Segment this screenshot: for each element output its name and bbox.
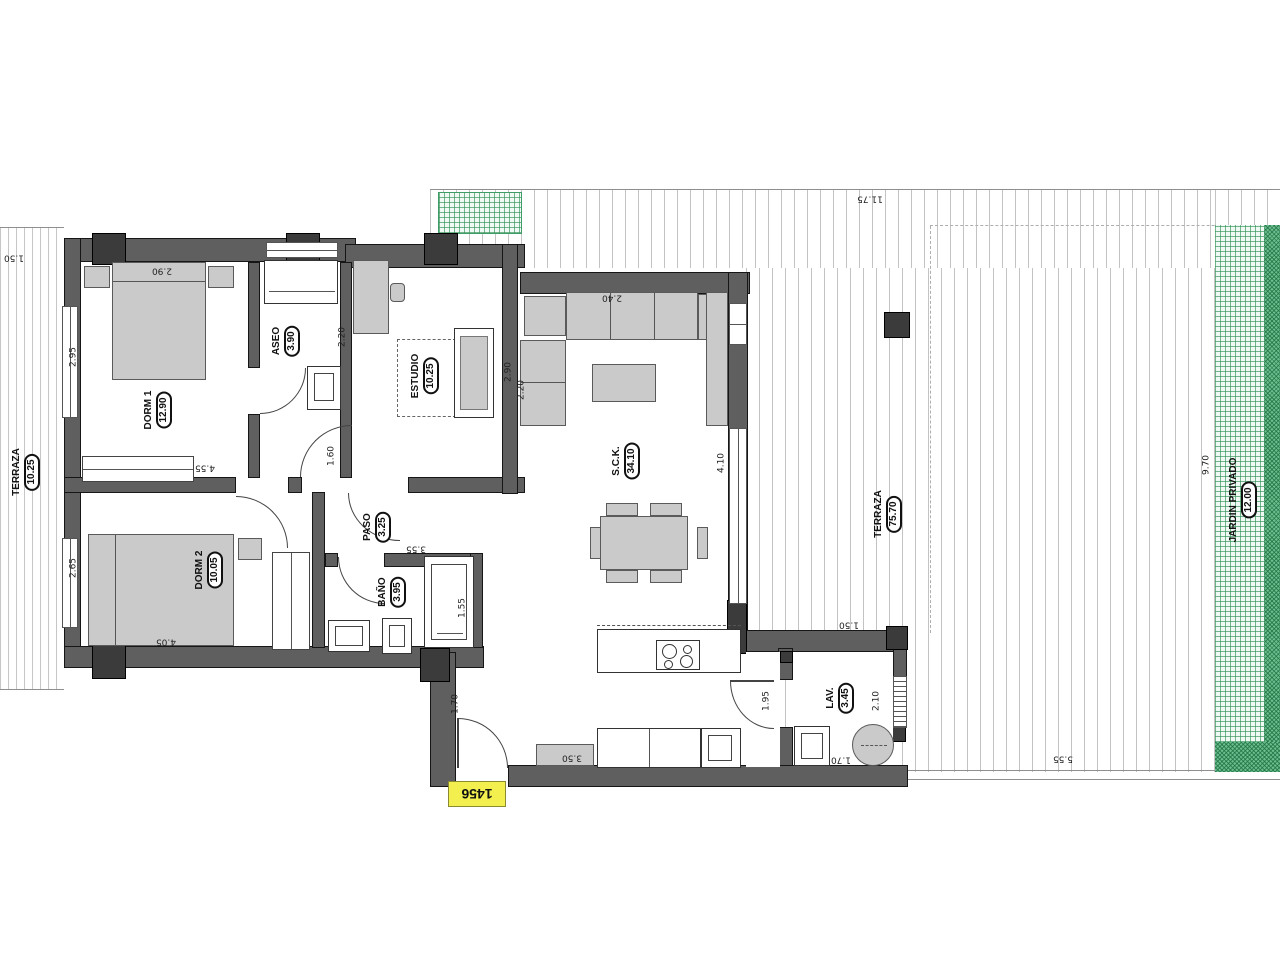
plan-reference-tag: 1456 <box>448 781 506 807</box>
washer-line <box>861 745 887 746</box>
wall-dorm1-aseo-upper <box>248 262 260 368</box>
dining-chair <box>590 527 601 559</box>
washing-machine <box>852 724 894 766</box>
laundry-sink <box>794 726 830 766</box>
room-name: PASO <box>363 513 373 541</box>
terrace-top-line <box>430 189 1280 190</box>
room-area: 3.90 <box>284 325 300 356</box>
room-label-aseo: ASEO 3.90 <box>272 325 300 356</box>
room-name: JARDIN PRIVADO <box>1229 458 1239 543</box>
room-name: BAÑO <box>378 577 388 606</box>
nightstand <box>208 266 234 288</box>
room-name: ASEO <box>272 327 282 355</box>
terrace-hatch-top <box>430 190 1215 268</box>
shower-drain <box>437 633 463 634</box>
dim-lav-offset: 1.50 <box>839 620 859 629</box>
wardrobe-dorm2 <box>272 552 310 650</box>
door-leaf-lav <box>730 680 774 682</box>
dim-bano-width: 3.55 <box>406 544 426 553</box>
room-label-bano: BAÑO 3.95 <box>378 576 406 607</box>
dim-paso-door: 1.60 <box>328 446 337 466</box>
room-area: 3.45 <box>838 682 854 713</box>
wall-dorm2-right <box>312 492 325 648</box>
dining-chair <box>606 503 638 516</box>
sink-basin <box>335 626 363 646</box>
terrace-bottom-line-2 <box>905 779 1280 780</box>
wall-lav-top <box>745 630 907 652</box>
floor-plan: DORM 1 12.90 DORM 2 10.05 ASEO 3.90 ESTU… <box>0 0 1280 960</box>
room-name: DORM 2 <box>195 551 205 590</box>
garden-patch-top <box>438 192 522 234</box>
window-glass-line <box>267 250 337 251</box>
wardrobe-line <box>291 553 292 649</box>
counter-line <box>269 291 335 292</box>
room-area: 3.25 <box>375 511 391 542</box>
sink-basin <box>801 733 823 759</box>
bath-sink <box>328 620 370 652</box>
room-label-sck: S.C.K. 34.10 <box>612 442 640 479</box>
dim-dorm2-width: 4.05 <box>156 637 176 646</box>
terrace-hatch-corner <box>1215 190 1280 225</box>
room-area: 12.00 <box>1241 481 1257 518</box>
dining-chair <box>650 503 682 516</box>
nightstand <box>84 266 110 288</box>
daybed <box>454 328 494 418</box>
garden-hedge-corner <box>1215 742 1280 772</box>
wardrobe-dorm1 <box>82 456 194 482</box>
pillar-entry <box>420 648 450 682</box>
door-arc-dorm2 <box>236 496 288 548</box>
room-area: 3.95 <box>390 576 406 607</box>
toilet-bano <box>382 618 412 654</box>
room-label-paso: PASO 3.25 <box>363 511 391 542</box>
room-label-terraza: TERRAZA 75.70 <box>874 490 902 538</box>
dim-shower: 1.55 <box>459 598 468 618</box>
dim-dorm1-width: 2.90 <box>152 266 172 275</box>
dim-terraza-bottom: 5.55 <box>1053 754 1073 763</box>
coffee-table <box>592 364 656 402</box>
room-name: S.C.K. <box>612 446 622 475</box>
pillar-terrace <box>884 312 910 338</box>
toilet-bowl <box>314 373 334 401</box>
window-aseo <box>266 242 338 258</box>
pillar-lav-inner <box>780 651 793 663</box>
garden-hedge-edge <box>1264 225 1280 772</box>
dim-aseo-depth: 2.20 <box>339 327 348 347</box>
kitchen-island <box>597 629 741 673</box>
burner <box>680 655 693 668</box>
wall-middle-pier <box>288 477 302 493</box>
toilet-bowl <box>389 625 405 647</box>
room-area: 10.25 <box>423 357 439 394</box>
room-label-terraza-left: TERRAZA 10.25 <box>12 448 40 496</box>
dim-sofa-depth: 2.20 <box>518 380 527 400</box>
daybed-cushion <box>460 336 488 410</box>
dim-kitchen-width: 3.50 <box>562 753 582 762</box>
left-walk-bottom-line <box>0 689 64 690</box>
dining-chair <box>606 570 638 583</box>
sofa-corner <box>524 296 566 336</box>
room-area: 10.05 <box>207 551 223 588</box>
glass-door-living <box>729 428 747 604</box>
room-area: 34.10 <box>624 442 640 479</box>
toilet-aseo <box>307 366 341 410</box>
door-leaf-entry <box>457 718 459 768</box>
room-name: TERRAZA <box>874 490 884 538</box>
wall-bano-top-left <box>325 553 338 567</box>
window-glass-line <box>70 539 71 627</box>
dim-sck-depth: 4.10 <box>718 453 727 473</box>
pillar-bottom-left <box>92 645 126 679</box>
dim-estudio-depth: 2.90 <box>505 362 514 382</box>
left-walk-top-line <box>0 227 64 228</box>
bed-dorm1 <box>112 262 206 380</box>
dim-dorm2-depth: 2.65 <box>70 558 79 578</box>
wall-lav-left-lower <box>778 727 793 767</box>
wall-dorm1-aseo-lower <box>248 414 260 478</box>
pillar-top-1 <box>92 233 126 265</box>
sideboard <box>706 292 728 426</box>
room-label-dorm2: DORM 2 10.05 <box>195 551 223 590</box>
cooktop <box>656 640 700 670</box>
dining-chair <box>650 570 682 583</box>
vanity-counter <box>264 260 338 304</box>
dim-dorm1-closet: 4.55 <box>195 463 215 472</box>
room-area: 12.90 <box>156 391 172 428</box>
dim-dorm1-depth: 2.95 <box>70 347 79 367</box>
burner <box>664 660 673 669</box>
dim-terraza-top: 11.75 <box>857 194 883 203</box>
door-arc-entry <box>458 718 508 768</box>
room-area: 10.25 <box>24 453 40 490</box>
room-label-dorm1: DORM 1 12.90 <box>144 391 172 430</box>
window-lav <box>893 676 907 728</box>
appliance-door <box>708 735 732 761</box>
dim-entry-door: 1.70 <box>452 694 461 714</box>
sofa-chaise <box>520 340 566 426</box>
room-name: ESTUDIO <box>411 354 421 398</box>
wall-lav-right-upper <box>893 648 907 678</box>
dim-side-walk: 1.50 <box>4 253 24 262</box>
wardrobe-line <box>83 469 193 470</box>
kitchen-cabinets <box>597 728 701 768</box>
counter-dashed-line <box>597 625 741 626</box>
room-label-estudio: ESTUDIO 10.25 <box>411 354 439 398</box>
window-dorm2 <box>62 538 78 628</box>
dining-table <box>600 516 688 570</box>
sofa-main <box>566 292 698 340</box>
dim-lav-depth: 2.10 <box>873 691 882 711</box>
kitchen-appliance <box>701 728 741 768</box>
room-name: TERRAZA <box>12 448 22 496</box>
room-name: LAV. <box>826 687 836 708</box>
bed-pillow-line <box>115 535 116 645</box>
window-glass-line <box>730 324 746 325</box>
pillar-top-3 <box>424 233 458 265</box>
bed-headboard-line <box>113 281 205 282</box>
room-label-jardin: JARDIN PRIVADO 12.00 <box>1229 458 1257 543</box>
room-name: DORM 1 <box>144 391 154 430</box>
burner <box>683 645 692 654</box>
dim-jardin-depth: 9.70 <box>1203 455 1212 475</box>
wall-living-top <box>520 272 750 294</box>
window-living <box>729 303 747 345</box>
wall-bottom <box>508 765 908 787</box>
pergola-dashed-side <box>930 226 931 633</box>
room-label-lav: LAV. 3.45 <box>826 682 854 713</box>
room-area: 75.70 <box>886 495 902 532</box>
window-glass-line <box>738 429 739 603</box>
desk <box>353 260 389 334</box>
burner <box>662 644 677 659</box>
dim-sofa-width: 2.40 <box>602 293 622 302</box>
pillar-lav-top-right <box>886 626 908 650</box>
dining-chair <box>697 527 708 559</box>
dim-lav-width: 1.70 <box>831 755 851 764</box>
door-arc-aseo <box>260 368 306 414</box>
desk-chair <box>390 283 405 302</box>
dim-terrace-door: 1.95 <box>763 691 772 711</box>
